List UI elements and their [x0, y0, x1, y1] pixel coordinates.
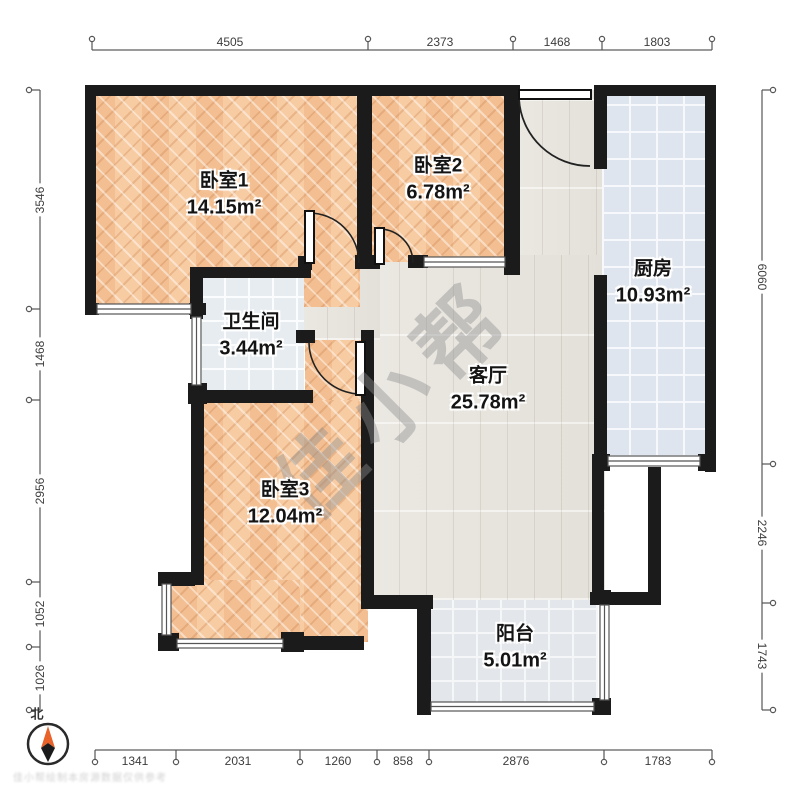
dim-bottom-0: 1341	[119, 754, 152, 768]
room-label-balcony: 阳台 5.01m²	[483, 623, 546, 674]
room-name: 厨房	[616, 258, 691, 283]
room-area: 3.44m²	[219, 335, 282, 361]
dim-top-3: 1803	[641, 35, 674, 49]
room-label-bathroom: 卫生间 3.44m²	[219, 311, 282, 362]
dim-right-2: 1743	[755, 640, 769, 673]
dim-top-1: 2373	[424, 35, 457, 49]
compass-north-label: 北	[30, 704, 43, 723]
room-area: 12.04m²	[248, 503, 323, 529]
window-bedroom3-bay-south	[177, 639, 283, 648]
dim-bottom-4: 2876	[500, 754, 533, 768]
window-bathroom-west	[192, 317, 201, 385]
dim-left-4: 1026	[33, 662, 47, 695]
dim-bottom-2: 1260	[322, 754, 355, 768]
room-label-kitchen: 厨房 10.93m²	[616, 258, 691, 309]
dim-left-0: 3546	[33, 184, 47, 217]
door-bedroom1	[305, 211, 359, 263]
room-name: 卧室1	[187, 170, 262, 195]
dim-left-2: 2956	[33, 475, 47, 508]
footer-watermark: 佳小帮绘制本房源数据仅供参考	[13, 769, 167, 784]
room-label-bedroom3: 卧室3 12.04m²	[248, 479, 323, 530]
window-kitchen-south	[608, 456, 700, 466]
dim-bottom-5: 1783	[642, 754, 675, 768]
floor-plan: 佳小帮 卧室1 14.15m² 卧室2 6.78m² 厨房 10.93m² 卫生…	[0, 0, 800, 800]
dim-left-1: 1468	[33, 338, 47, 371]
dim-right-1: 2246	[755, 517, 769, 550]
room-area: 25.78m²	[451, 389, 526, 415]
room-name: 阳台	[483, 623, 546, 648]
window-balcony-south	[431, 702, 594, 711]
door-bedroom2	[375, 228, 413, 264]
room-label-living: 客厅 25.78m²	[451, 365, 526, 416]
dim-bottom-1: 2031	[222, 754, 255, 768]
room-label-bedroom1: 卧室1 14.15m²	[187, 170, 262, 221]
room-area: 5.01m²	[483, 647, 546, 673]
room-name: 卧室3	[248, 479, 323, 504]
dim-top-2: 1468	[541, 35, 574, 49]
window-bedroom1-south	[97, 304, 191, 314]
room-area: 14.15m²	[187, 194, 262, 220]
door-entrance	[519, 90, 591, 166]
dim-top-0: 4505	[214, 35, 247, 49]
dim-left-3: 1052	[33, 598, 47, 631]
dim-right-0: 6060	[755, 261, 769, 294]
window-balcony-east	[600, 605, 609, 700]
compass-icon	[28, 724, 68, 764]
room-area: 10.93m²	[616, 282, 691, 308]
room-name: 卫生间	[219, 311, 282, 336]
room-name: 客厅	[451, 365, 526, 390]
room-area: 6.78m²	[406, 179, 469, 205]
window-bedroom3-bay-west	[162, 584, 171, 635]
dim-bottom-3: 858	[390, 754, 416, 768]
room-name: 卧室2	[406, 155, 469, 180]
room-label-bedroom2: 卧室2 6.78m²	[406, 155, 469, 206]
